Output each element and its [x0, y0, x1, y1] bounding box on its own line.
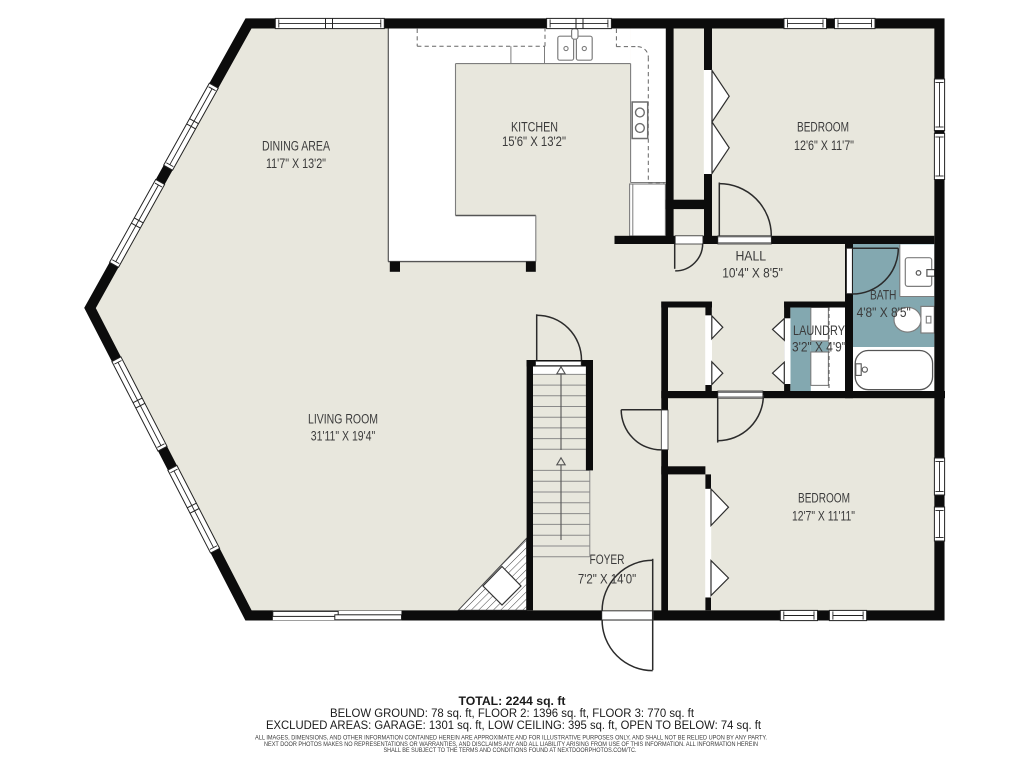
svg-text:10'4" X 8'5": 10'4" X 8'5": [722, 265, 783, 280]
svg-text:4'8" X 8'5": 4'8" X 8'5": [857, 305, 911, 320]
svg-text:11'7" X 13'2": 11'7" X 13'2": [266, 156, 326, 171]
svg-text:LIVING ROOM: LIVING ROOM: [308, 412, 378, 427]
svg-text:3'2" X 4'9": 3'2" X 4'9": [792, 340, 846, 355]
svg-text:12'7" X 11'11": 12'7" X 11'11": [792, 509, 855, 524]
svg-text:DINING AREA: DINING AREA: [262, 139, 330, 154]
svg-text:15'6" X 13'2": 15'6" X 13'2": [502, 134, 566, 149]
svg-text:BEDROOM: BEDROOM: [798, 491, 850, 506]
svg-text:EXCLUDED AREAS: GARAGE: 1301 s: EXCLUDED AREAS: GARAGE: 1301 sq. ft, LOW…: [266, 718, 762, 732]
svg-text:LAUNDRY: LAUNDRY: [793, 323, 845, 338]
svg-text:HALL: HALL: [735, 248, 766, 263]
svg-text:BEDROOM: BEDROOM: [797, 120, 849, 135]
svg-text:SHALL BE SUBJECT TO THE TERMS: SHALL BE SUBJECT TO THE TERMS AND CONDIT…: [384, 747, 637, 754]
svg-text:KITCHEN: KITCHEN: [511, 120, 558, 135]
svg-text:BATH: BATH: [870, 287, 897, 302]
svg-text:FOYER: FOYER: [590, 552, 625, 567]
svg-text:7'2" X 14'0": 7'2" X 14'0": [578, 572, 637, 587]
svg-text:31'11" X 19'4": 31'11" X 19'4": [311, 428, 376, 443]
svg-text:12'6" X 11'7": 12'6" X 11'7": [794, 138, 854, 153]
